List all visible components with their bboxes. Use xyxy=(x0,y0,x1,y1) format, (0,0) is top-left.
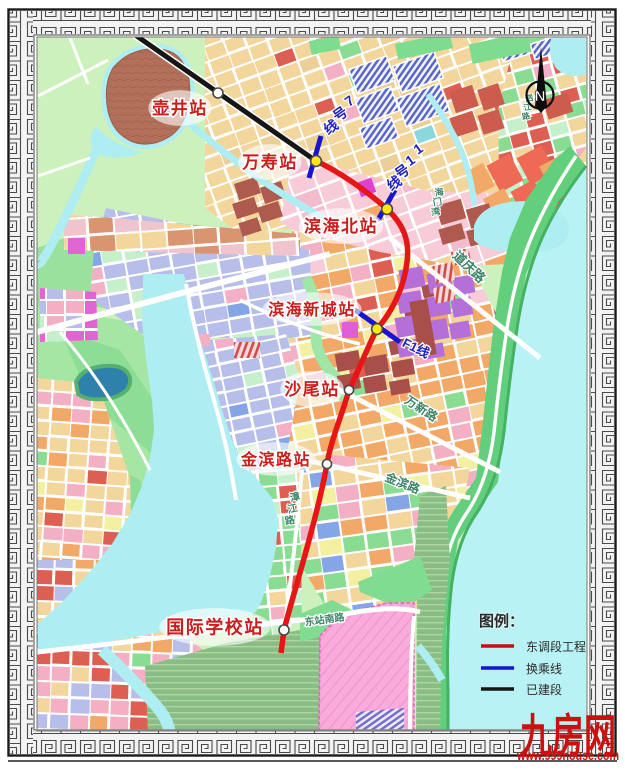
svg-text:国际学校站: 国际学校站 xyxy=(166,616,264,637)
svg-text:沙尾站: 沙尾站 xyxy=(284,379,340,399)
svg-text:金滨路站: 金滨路站 xyxy=(240,450,311,469)
svg-text:www.999house.com: www.999house.com xyxy=(516,747,619,763)
svg-text:换乘线: 换乘线 xyxy=(526,662,562,676)
svg-text:图例：: 图例： xyxy=(479,612,524,630)
svg-text:壶井站: 壶井站 xyxy=(152,98,208,118)
svg-text:万寿站: 万寿站 xyxy=(241,152,298,172)
svg-text:N: N xyxy=(535,88,546,105)
svg-text:滨海北站: 滨海北站 xyxy=(304,216,378,236)
svg-text:东调段工程: 东调段工程 xyxy=(526,639,586,654)
svg-text:已建段: 已建段 xyxy=(526,682,562,697)
svg-text:滨海新城站: 滨海新城站 xyxy=(268,300,356,319)
svg-text:湾: 湾 xyxy=(430,205,441,217)
